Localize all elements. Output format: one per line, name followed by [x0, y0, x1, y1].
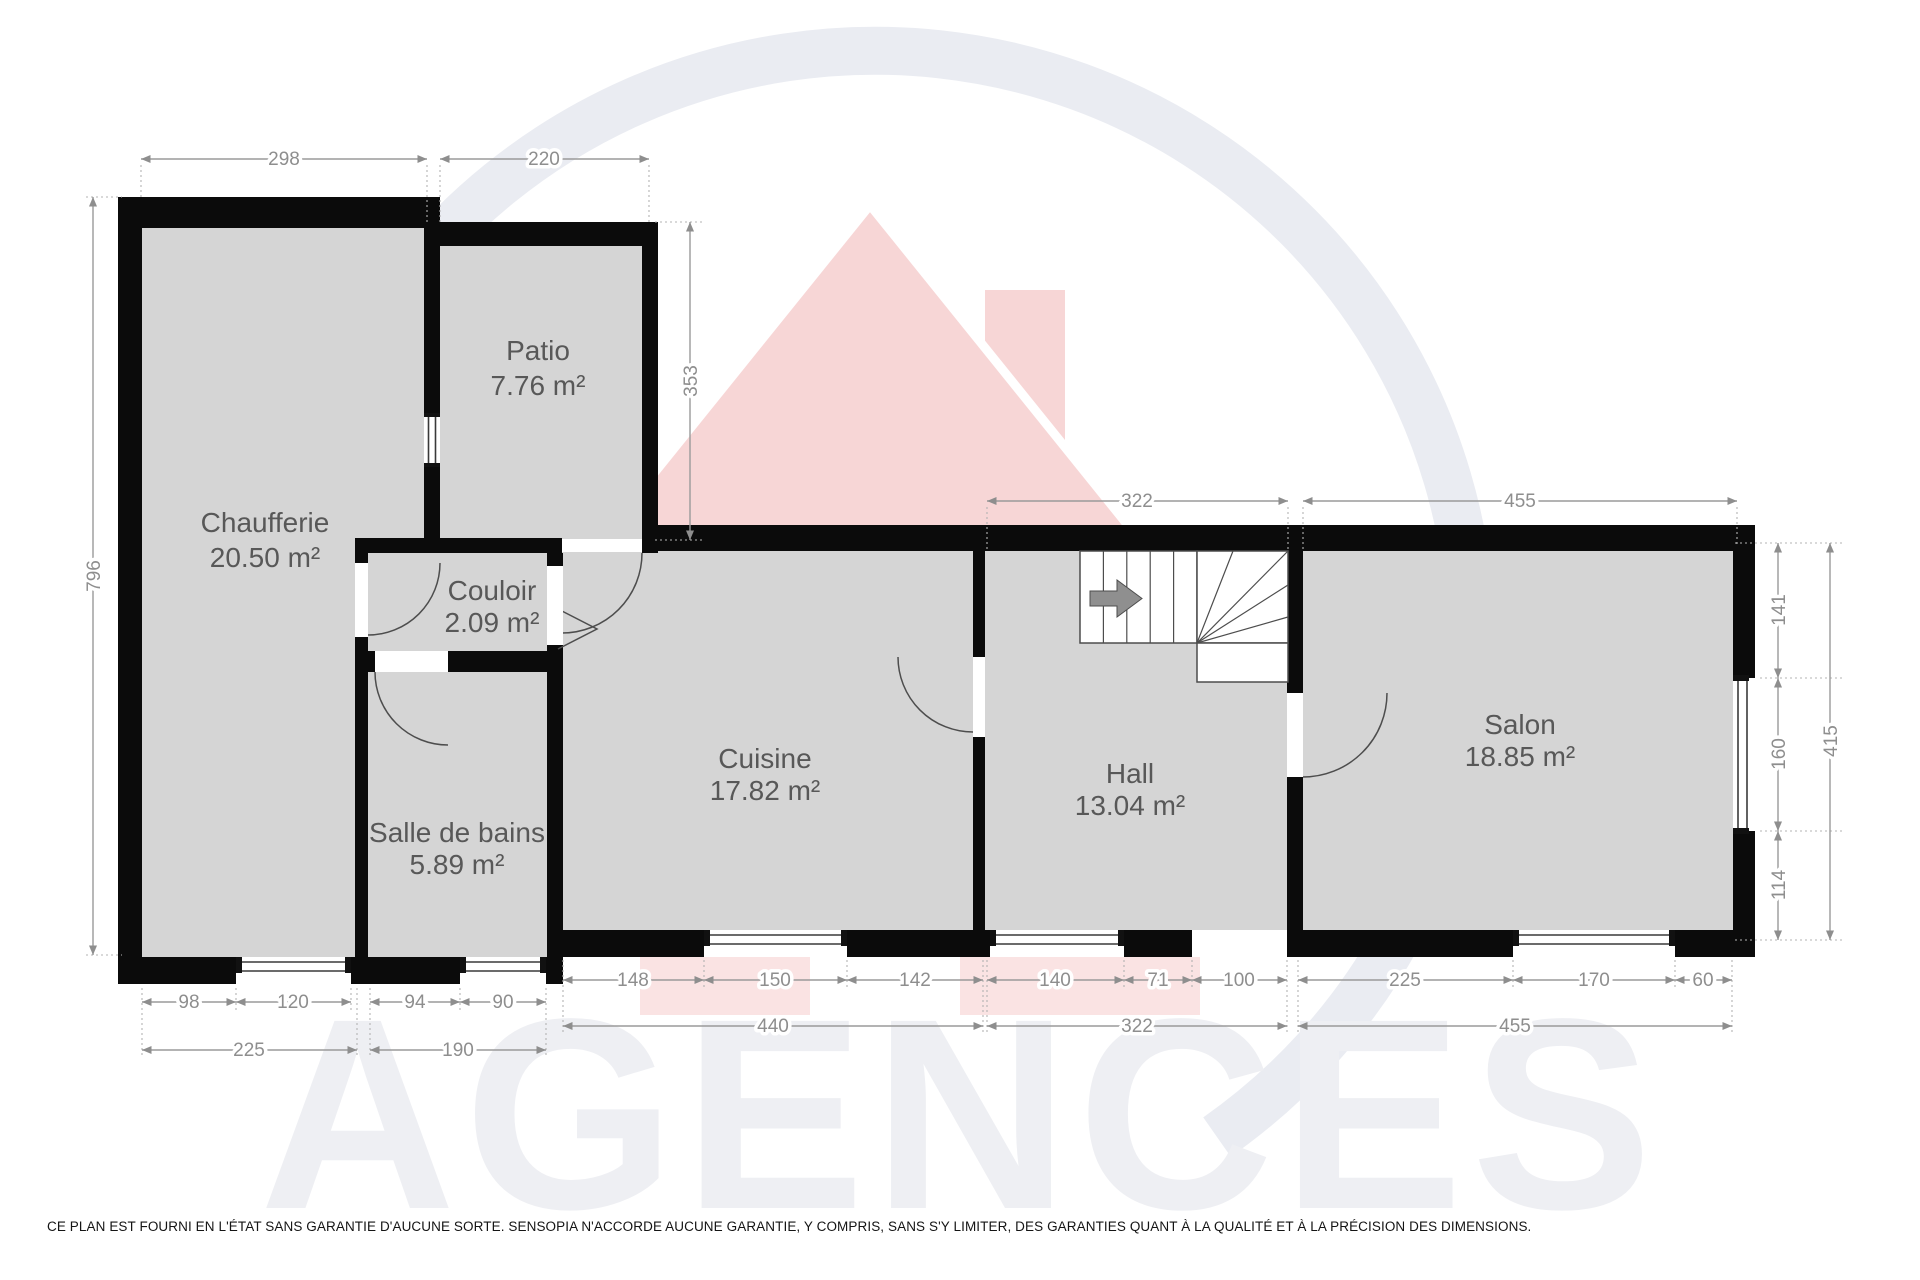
room-label-hall: Hall: [1106, 758, 1154, 789]
room-area-couloir: 2.09 m²: [445, 607, 540, 638]
dim-right-upper: 141: [1769, 594, 1790, 626]
dim-chaufferie-seg1: 98: [178, 992, 199, 1013]
room-area-chaufferie: 20.50 m²: [210, 542, 321, 573]
dim-right-total: 415: [1821, 725, 1842, 757]
window-salon-bottom: [1513, 930, 1675, 957]
room-label-couloir: Couloir: [448, 575, 537, 606]
dim-salon-seg1: 225: [1389, 970, 1421, 991]
room-area-salon: 18.85 m²: [1465, 741, 1576, 772]
dim-salon-top-width: 455: [1504, 491, 1536, 512]
floorplan-canvas: AGENCES: [0, 0, 1920, 1280]
dim-salon-seg3: 60: [1692, 970, 1713, 991]
dim-sdb-seg1: 94: [404, 992, 426, 1013]
dim-chaufferie-total: 225: [233, 1040, 265, 1061]
dim-right-window: 160: [1769, 738, 1790, 770]
entrance-opening-hall: [1192, 930, 1287, 957]
window-cuisine: [704, 930, 847, 957]
dim-cuisine-seg1: 148: [617, 970, 649, 991]
room-label-patio: Patio: [506, 335, 570, 366]
room-area-cuisine: 17.82 m²: [710, 775, 821, 806]
window-hall: [990, 930, 1124, 957]
window-salon-right: [1733, 675, 1755, 834]
dim-hall-top-width: 322: [1121, 491, 1153, 512]
window-salle-de-bains: [460, 957, 546, 984]
dim-right-lower: 114: [1769, 869, 1790, 900]
dim-hall-seg1: 140: [1039, 970, 1071, 991]
dim-hall-seg2: 71: [1147, 970, 1168, 991]
room-label-salle-de-bains: Salle de bains: [369, 817, 545, 848]
room-area-patio: 7.76 m²: [491, 370, 586, 401]
dim-chaufferie-width: 298: [268, 149, 300, 170]
room-area-salle-de-bains: 5.89 m²: [410, 849, 505, 880]
room-label-salon: Salon: [1484, 709, 1556, 740]
dim-patio-height: 353: [681, 365, 702, 397]
dim-sdb-seg2: 90: [492, 992, 513, 1013]
window-chaufferie-patio: [424, 413, 440, 467]
room-area-hall: 13.04 m²: [1075, 790, 1186, 821]
disclaimer-text: CE PLAN EST FOURNI EN L'ÉTAT SANS GARANT…: [47, 1219, 1531, 1234]
room-salle-de-bains: [368, 672, 547, 957]
dim-patio-width: 220: [528, 149, 560, 170]
dim-sdb-total: 190: [442, 1040, 474, 1061]
dim-left-total-height: 796: [84, 560, 105, 592]
dim-cuisine-total: 440: [757, 1016, 789, 1037]
window-chaufferie: [236, 957, 351, 984]
floorplan-page: AGENCES: [0, 0, 1920, 1280]
dim-salon-seg2: 170: [1578, 970, 1610, 991]
passage-couloir-cuisine: [547, 566, 563, 645]
dim-hall-total: 322: [1121, 1016, 1153, 1037]
room-label-chaufferie: Chaufferie: [201, 507, 330, 538]
dim-cuisine-seg3: 142: [899, 970, 931, 991]
room-cuisine: [563, 551, 973, 930]
room-label-cuisine: Cuisine: [718, 743, 811, 774]
dim-cuisine-seg2: 150: [759, 970, 791, 991]
dim-hall-seg3: 100: [1223, 970, 1255, 991]
dim-salon-total: 455: [1499, 1016, 1531, 1037]
dim-chaufferie-seg2: 120: [277, 992, 309, 1013]
